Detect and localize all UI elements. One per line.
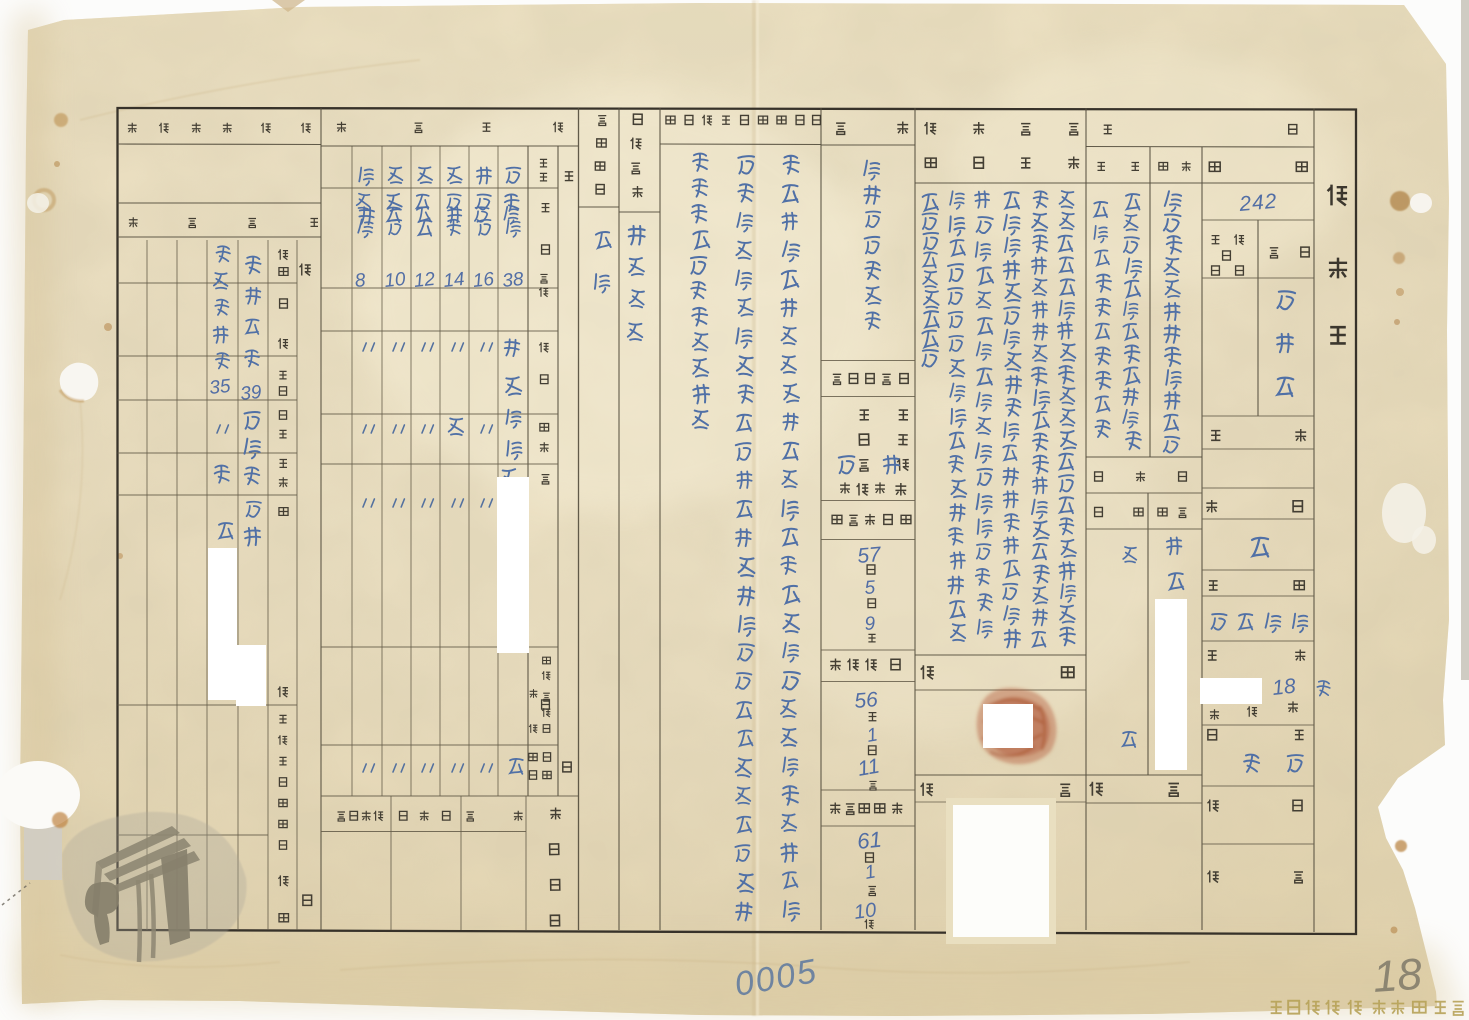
svg-text:5: 5: [864, 577, 876, 599]
svg-text:10: 10: [383, 269, 407, 292]
svg-text:56: 56: [853, 688, 879, 713]
svg-text:14: 14: [442, 269, 465, 292]
svg-text:11: 11: [856, 754, 881, 780]
svg-text:9: 9: [864, 613, 876, 635]
svg-text:18: 18: [1271, 675, 1297, 700]
svg-text:61: 61: [856, 827, 883, 854]
svg-text:38: 38: [501, 269, 525, 292]
svg-text:39: 39: [239, 382, 263, 405]
svg-text:10: 10: [853, 899, 878, 924]
svg-text:18: 18: [1371, 950, 1424, 1002]
svg-text:12: 12: [413, 269, 437, 292]
svg-text:35: 35: [208, 376, 232, 399]
svg-text:16: 16: [472, 269, 496, 292]
svg-text:57: 57: [856, 543, 883, 568]
svg-text:242: 242: [1237, 190, 1278, 216]
